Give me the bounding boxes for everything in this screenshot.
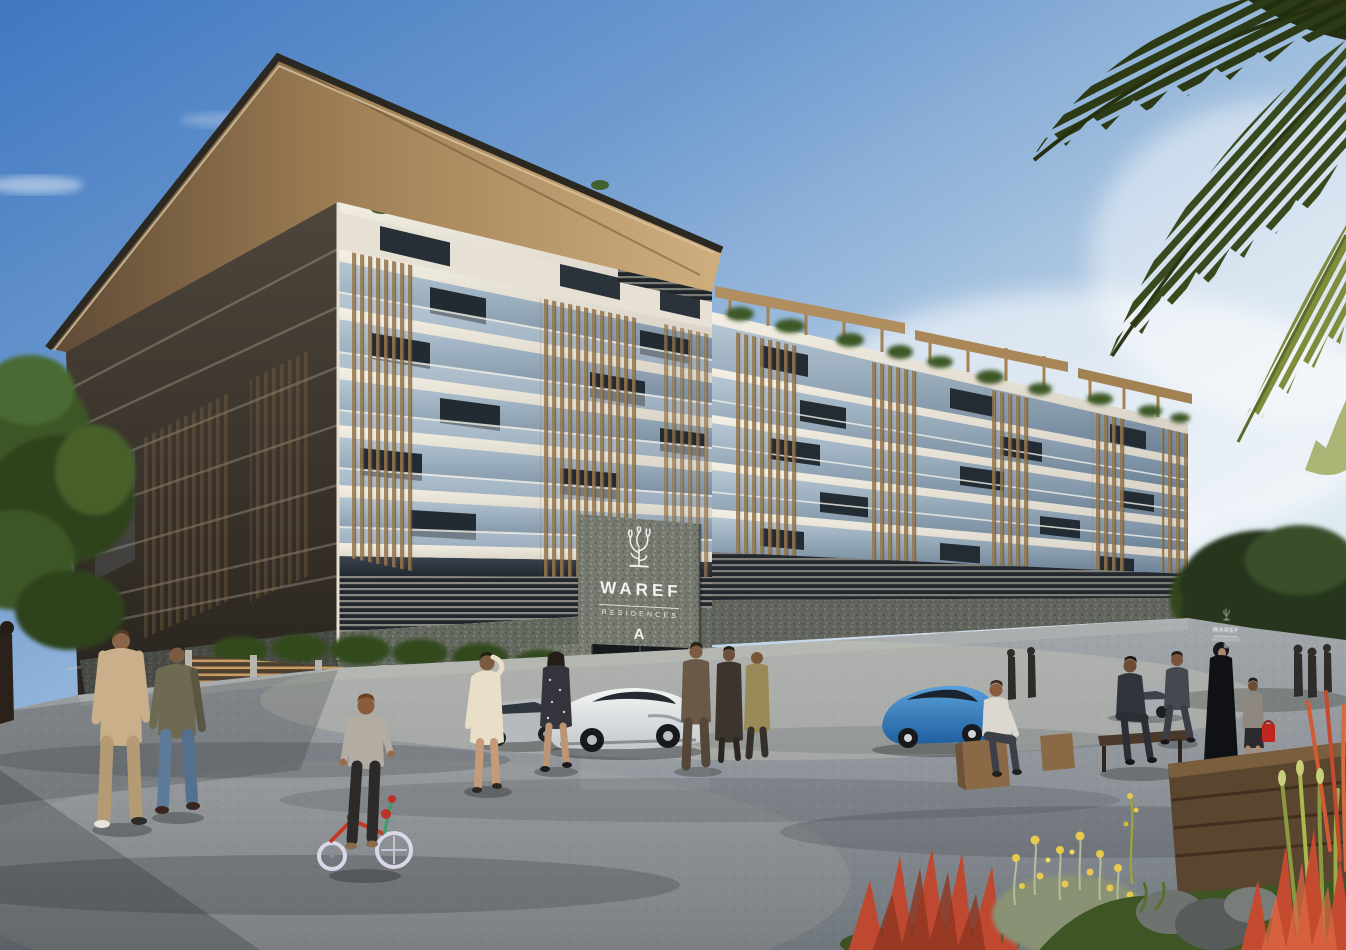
pedestrian-far-left: [0, 621, 14, 724]
cube-bench: [1040, 733, 1075, 771]
rendering-scene: WAREF RESIDENCES A WAREF RESIDENCES B: [0, 0, 1346, 950]
scene-illustration: [0, 0, 1346, 950]
cube-bench: [962, 738, 1010, 790]
